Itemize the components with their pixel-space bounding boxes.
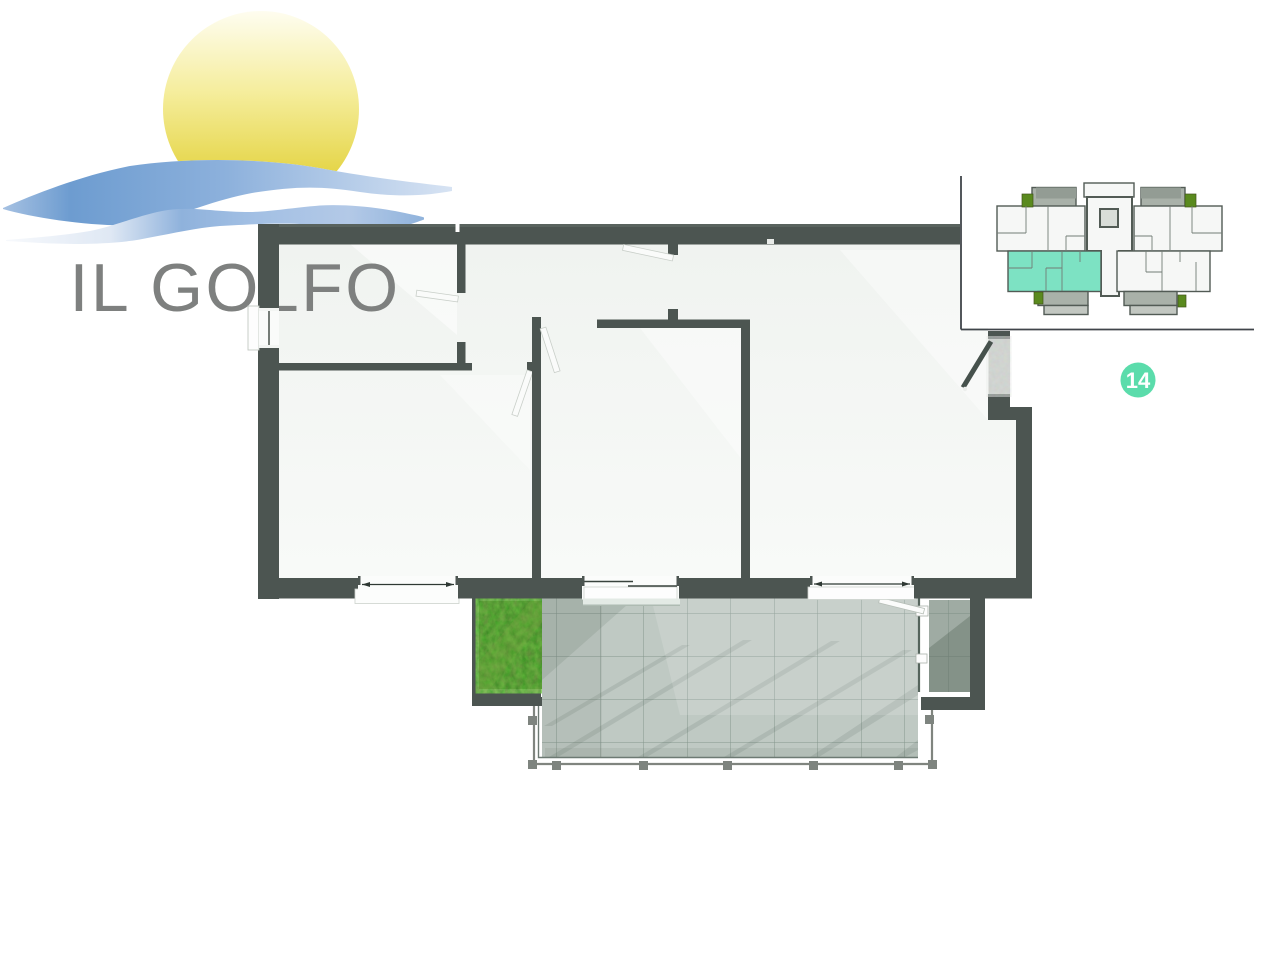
svg-text:IL GOLFO: IL GOLFO bbox=[70, 250, 401, 326]
svg-text:14: 14 bbox=[1126, 368, 1151, 393]
